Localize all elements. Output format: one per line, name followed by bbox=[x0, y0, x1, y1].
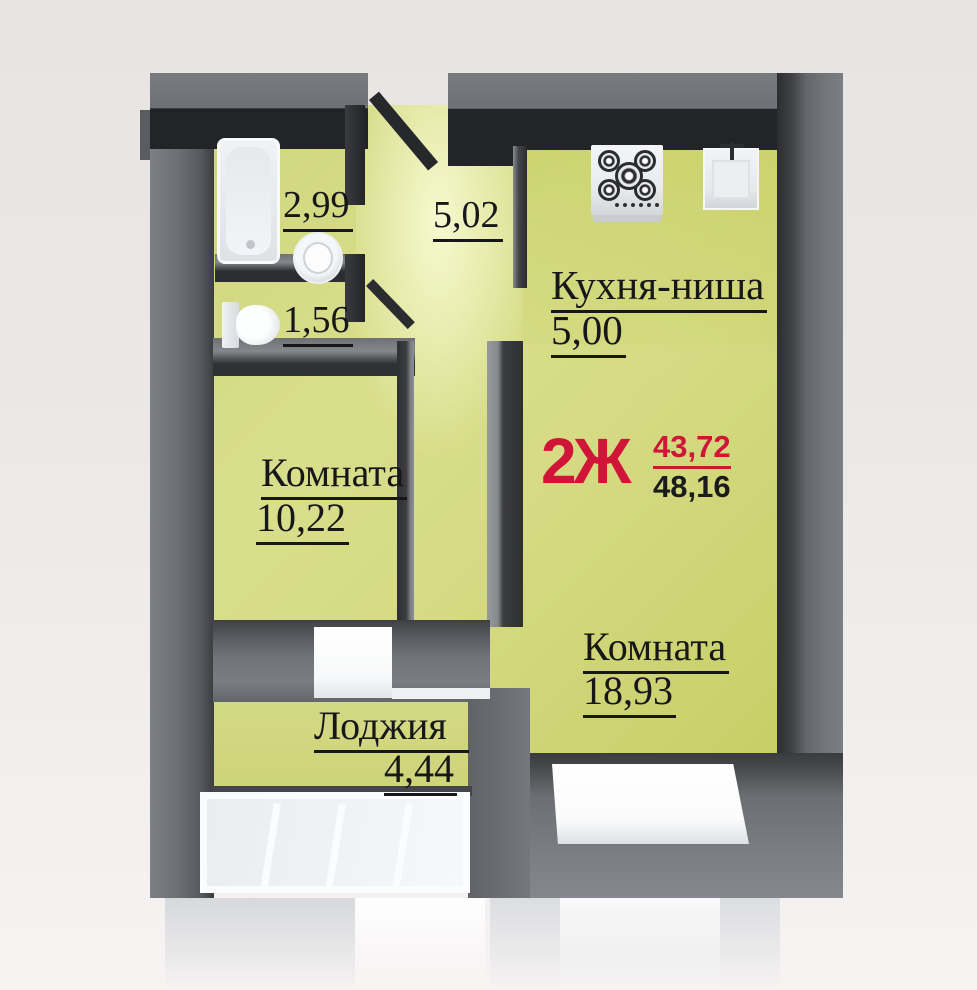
toilet-bowl bbox=[236, 305, 280, 345]
washbasin-bowl bbox=[303, 242, 333, 274]
wall-hall-kitchen bbox=[513, 146, 527, 288]
washbasin bbox=[293, 232, 343, 284]
room-large-name-label: Комната bbox=[583, 626, 729, 674]
faucet-icon bbox=[720, 144, 744, 148]
room-small-name-label: Комната bbox=[261, 452, 407, 500]
stove-knob bbox=[623, 203, 627, 207]
kitchen-sink-basin bbox=[712, 160, 750, 199]
bathroom-area-label: 2,99 bbox=[283, 186, 353, 232]
stove-knob bbox=[647, 203, 651, 207]
loggia-area-label: 4,44 bbox=[384, 748, 457, 796]
kitchen-name-label: Кухня-ниша bbox=[551, 264, 767, 313]
glazing-mullion bbox=[260, 803, 281, 891]
bathtub-drain bbox=[246, 240, 255, 249]
wall-rooms-divider bbox=[487, 341, 523, 627]
wall-loggia-right bbox=[468, 688, 530, 898]
window bbox=[552, 764, 749, 844]
wall-outer-left bbox=[150, 73, 214, 898]
light-shaft bbox=[165, 898, 355, 990]
loggia-glazing bbox=[200, 792, 470, 893]
room-small-area-label: 10,22 bbox=[256, 497, 349, 545]
unit-living-area: 43,72 bbox=[653, 431, 731, 469]
wc-area-label: 1,56 bbox=[283, 301, 353, 347]
stove-knob bbox=[639, 203, 643, 207]
light-shaft bbox=[560, 898, 720, 990]
unit-total-area: 48,16 bbox=[653, 471, 731, 504]
unit-label: 2Ж bbox=[541, 428, 628, 495]
bathtub-basin bbox=[226, 147, 271, 255]
kitchen-area-label: 5,00 bbox=[551, 309, 626, 358]
hall-area-label: 5,02 bbox=[433, 196, 503, 242]
balcony-window bbox=[314, 627, 392, 698]
room-large-area-label: 18,93 bbox=[583, 670, 676, 718]
kitchen-sink bbox=[703, 148, 759, 210]
light-shaft bbox=[355, 898, 485, 990]
bathtub bbox=[217, 138, 280, 264]
glazing-mullion bbox=[325, 803, 346, 891]
toilet bbox=[222, 302, 280, 348]
stove-knob bbox=[631, 203, 635, 207]
window-sill bbox=[392, 688, 490, 699]
stove-knob bbox=[615, 203, 619, 207]
stove-knob bbox=[655, 203, 659, 207]
floor-plan: 2,99 5,02 1,56 Кухня-ниша 5,00 Комната 1… bbox=[0, 0, 977, 990]
glazing-mullion bbox=[392, 803, 413, 891]
stove-burner-center bbox=[615, 162, 643, 190]
stove bbox=[591, 145, 663, 215]
